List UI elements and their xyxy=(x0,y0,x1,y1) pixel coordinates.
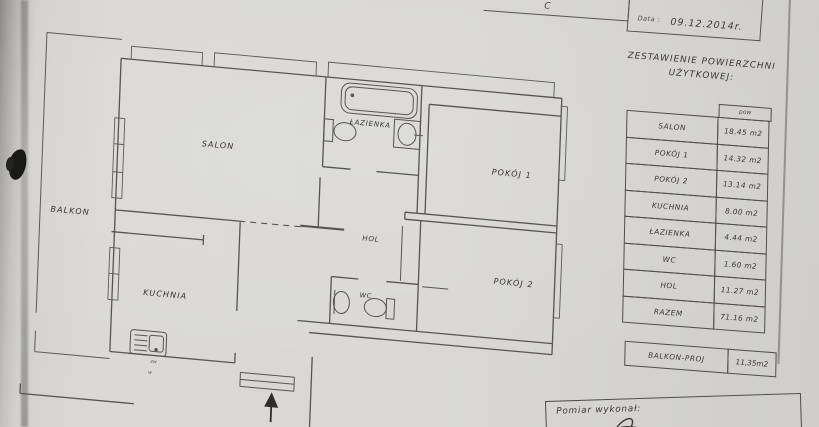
section-cell: C xyxy=(484,0,631,22)
title-block: C Data : 09.12.2014r. xyxy=(483,0,768,47)
signature-icon xyxy=(598,410,689,427)
date-cell: Data : 09.12.2014r. xyxy=(627,0,764,41)
section-value: C xyxy=(544,1,552,12)
area-table: pow SALON 18.45 m2 POKÓJ 1 14.32 m2 POKÓ… xyxy=(622,97,774,334)
row-name: BALKON-PROJ xyxy=(624,341,729,374)
row-area: 71.16 m2 xyxy=(713,302,766,333)
utility-mark-zw: zw xyxy=(150,360,157,366)
walls xyxy=(19,50,562,427)
interior-doors xyxy=(240,212,451,405)
bathtub-icon xyxy=(341,82,418,119)
entrance-arrow-icon xyxy=(264,392,279,423)
floor-plan: BALKON SALON ŁAZIENKA POKÓJ 1 POKÓJ 2 HO… xyxy=(0,2,608,427)
open-passage-dashed-line xyxy=(239,221,300,227)
floor-plan-drawing xyxy=(0,2,608,427)
date-value: 09.12.2014r. xyxy=(670,17,743,33)
utility-mark-w: w xyxy=(148,371,152,376)
row-area: 11,35m2 xyxy=(727,349,777,378)
row-name: RAZEM xyxy=(622,295,715,330)
date-label: Data : xyxy=(637,14,660,24)
area-summary-panel: ZESTAWIENIE POWIERZCHNI UŻYTKOWEJ: pow S… xyxy=(609,40,806,404)
kitchen-sink-icon xyxy=(130,329,167,356)
panel-heading: ZESTAWIENIE POWIERZCHNI UŻYTKOWEJ: xyxy=(615,48,788,89)
room-label-wc: WC xyxy=(360,291,372,300)
wall-thick-segment xyxy=(300,226,344,230)
wc-washbasin-icon xyxy=(333,290,350,315)
balcony-railing xyxy=(35,33,122,359)
balkon-row: BALKON-PROJ 11,35m2 xyxy=(624,341,776,378)
room-label-hol: HOL xyxy=(362,234,379,244)
scanned-floor-plan-page: C Data : 09.12.2014r. xyxy=(0,0,819,427)
